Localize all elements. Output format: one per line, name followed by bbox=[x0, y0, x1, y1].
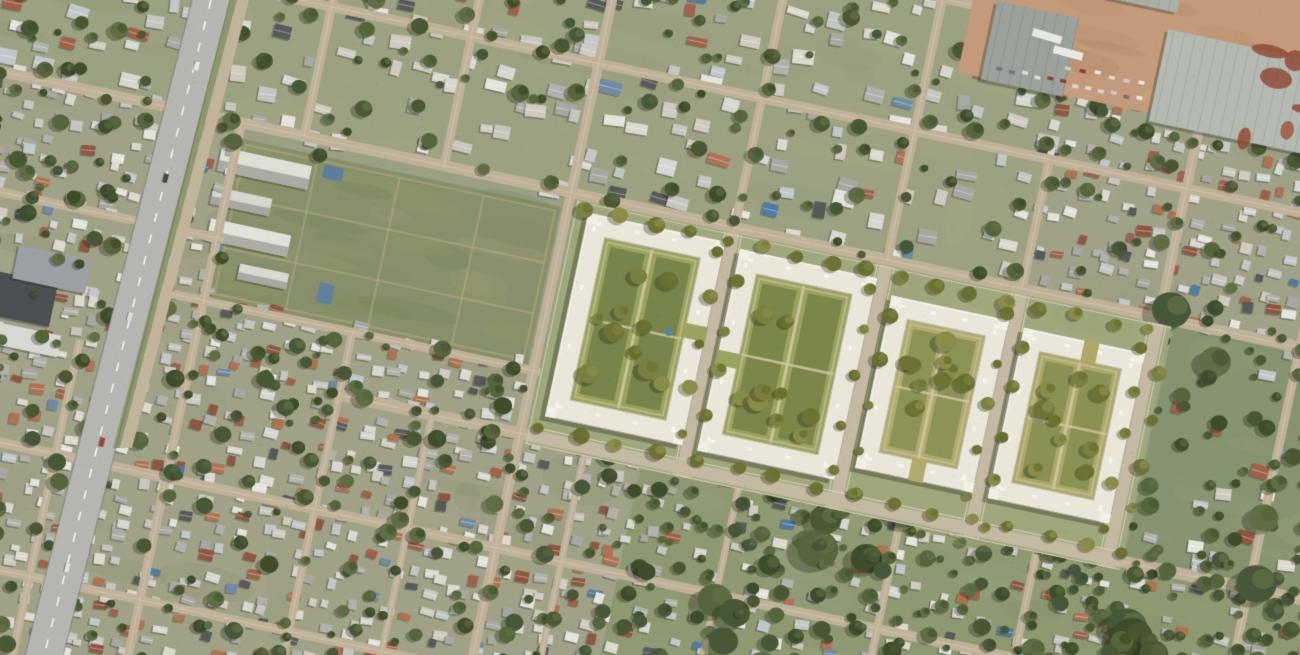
satellite-view bbox=[0, 0, 1300, 655]
aerial-imagery-canvas bbox=[0, 0, 1300, 655]
